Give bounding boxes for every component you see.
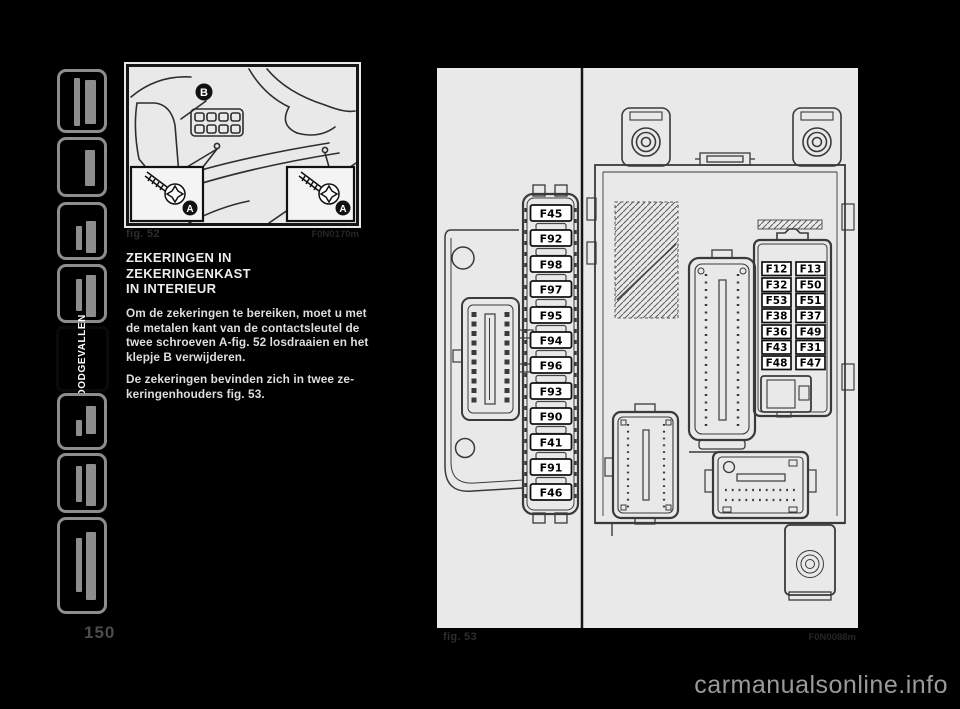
- fuse-id: F90: [540, 411, 563, 424]
- body-line: Om de zekeringen te bereiken, moet u met: [126, 306, 382, 321]
- fuse-cell: F98: [531, 256, 572, 282]
- left-fuse-labels: F45 F92 F98 F97 F95 F94: [531, 205, 572, 500]
- figure-53-code: F0N0088m: [808, 632, 856, 643]
- tab-text-blur: [76, 466, 82, 502]
- fuse-grid-labels: F12 F13 F32 F50 F53 F51 F38 F37 F36 F49: [762, 262, 825, 370]
- screw-inset-left: A: [131, 167, 203, 221]
- fuse-id: F38: [766, 311, 788, 323]
- fuse-grid-row: F43 F31: [762, 341, 825, 355]
- fuse-cell: F41: [531, 434, 572, 460]
- heading-line: ZEKERINGEN IN: [126, 250, 376, 266]
- fuse-id: F47: [800, 358, 822, 370]
- fuse-id: F93: [540, 386, 563, 399]
- fuse-id: F12: [766, 264, 788, 276]
- body-line: De zekeringen bevinden zich in twee ze-: [126, 372, 382, 387]
- sidebar-tab-7: [57, 453, 107, 513]
- tab-text-blur: [85, 80, 96, 124]
- sidebar-tab-noodgevallen: NOODGEVALLEN: [56, 326, 109, 392]
- fuse-cell: F46: [531, 484, 572, 500]
- edge-connector: [453, 298, 533, 420]
- sidebar-tab-2: [57, 137, 107, 197]
- figure-52-code: F0N0170m: [311, 229, 359, 240]
- fuse-cell: F91: [531, 459, 572, 485]
- fuse-cell: F94: [531, 332, 572, 358]
- figure-52-drawing: B A: [129, 67, 356, 223]
- fuse-grid-row: F53 F51: [762, 294, 825, 308]
- active-section-label: NOODGEVALLEN: [77, 314, 88, 405]
- fuse-cell: F93: [531, 383, 572, 409]
- tab-text-blur: [86, 275, 96, 317]
- watermark-text: carmanualsonline.info: [694, 671, 948, 700]
- fuse-id: F53: [766, 295, 788, 307]
- mounting-post-left: [622, 108, 670, 166]
- fuse-id: F50: [800, 280, 822, 292]
- figure-53-drawing: F45 F92 F98 F97 F95 F94: [437, 68, 858, 628]
- label-b-badge: B: [196, 84, 213, 101]
- fuse-grid-row: F32 F50: [762, 278, 825, 292]
- fuse-id: F92: [540, 233, 563, 246]
- lower-right-connector: [705, 452, 816, 518]
- figure-53-caption: fig. 53 F0N0088m: [443, 631, 856, 643]
- fuse-id: F48: [766, 358, 788, 370]
- figure-53-box: F45 F92 F98 F97 F95 F94: [437, 68, 858, 628]
- sidebar-tab-1: [57, 69, 107, 133]
- tab-text-blur: [76, 420, 82, 436]
- screw-inset-right: A: [287, 167, 354, 221]
- fuse-cell: F95: [531, 307, 572, 333]
- central-connector: [689, 250, 755, 452]
- figure-52-number: fig. 52: [126, 228, 160, 240]
- body-line: klepje B verwijderen.: [126, 350, 382, 365]
- label-a-right-text: A: [339, 204, 346, 215]
- fuse-id: F37: [800, 311, 822, 323]
- fuse-grid-row: F36 F49: [762, 325, 825, 339]
- fuse-id: F32: [766, 280, 788, 292]
- fuse-cell: F97: [531, 281, 572, 307]
- fuse-id: F13: [800, 264, 822, 276]
- sidebar-tab-3: [57, 202, 107, 260]
- fuse-id: F43: [766, 342, 788, 354]
- fuse-id: F96: [540, 360, 563, 373]
- fuse-cell: F92: [531, 230, 572, 256]
- manual-page: { "page": { "number": "150", "watermark"…: [0, 0, 960, 709]
- heading-line: ZEKERINGENKAST: [126, 266, 376, 282]
- paragraph-2: De zekeringen bevinden zich in twee ze- …: [126, 372, 382, 401]
- figure-52-box: B A: [124, 62, 361, 228]
- tab-text-blur: [86, 221, 96, 253]
- fuse-id: F98: [540, 259, 563, 272]
- fuse-id: F51: [800, 295, 822, 307]
- heading-line: IN INTERIEUR: [126, 281, 376, 297]
- leader-line-a-left2: [203, 149, 217, 167]
- fuse-cell: F90: [531, 408, 572, 434]
- fuse-id: F46: [540, 487, 563, 500]
- fuse-id: F45: [540, 208, 563, 221]
- section-heading: ZEKERINGEN IN ZEKERINGENKAST IN INTERIEU…: [126, 250, 376, 297]
- hatched-strip: [758, 220, 822, 229]
- fuse-grid-row: F12 F13: [762, 262, 825, 276]
- sidebar-tab-6: [57, 393, 107, 450]
- body-line: twee schroeven A-fig. 52 losdraaien en h…: [126, 335, 382, 350]
- tab-text-blur: [76, 279, 82, 311]
- fuse-id: F41: [540, 437, 563, 450]
- tab-text-blur: [76, 538, 82, 592]
- bracket-outline: [445, 230, 523, 491]
- fuse-id: F36: [766, 327, 788, 339]
- tab-text-blur: [86, 406, 96, 434]
- page-number: 150: [84, 623, 115, 643]
- figure-52-caption: fig. 52 F0N0170m: [126, 228, 359, 240]
- fuse-id: F97: [540, 284, 563, 297]
- paragraph-1: Om de zekeringen te bereiken, moet u met…: [126, 306, 382, 364]
- body-line: de metalen kant van de contactsleutel de: [126, 321, 382, 336]
- mounting-post-right: [793, 108, 841, 166]
- fuse-id: F94: [540, 335, 563, 348]
- fuse-id: F49: [800, 327, 822, 339]
- tab-text-blur: [76, 226, 82, 250]
- tab-text-blur: [74, 78, 80, 126]
- sidebar-tab-8: [57, 517, 107, 614]
- fuse-cell: F45: [531, 205, 572, 231]
- figure-52-frame: B A: [126, 64, 359, 226]
- fuse-id: F31: [800, 342, 822, 354]
- figure-53-number: fig. 53: [443, 631, 477, 643]
- fuse-id: F95: [540, 310, 563, 323]
- fuse-grid-row: F48 F47: [762, 356, 825, 370]
- lower-left-connector: [605, 404, 678, 524]
- leader-line-a-left: [187, 149, 217, 167]
- body-line: keringenhouders fig. 53.: [126, 387, 382, 402]
- fuse-cell: F96: [531, 357, 572, 383]
- tab-text-blur: [86, 532, 96, 600]
- top-clip: [695, 153, 755, 165]
- label-b-text: B: [200, 87, 208, 99]
- tab-text-blur: [85, 150, 95, 186]
- label-a-left-text: A: [186, 204, 193, 215]
- leader-line-b: [181, 101, 206, 119]
- tab-text-blur: [86, 464, 96, 506]
- hatched-area-large: [615, 202, 678, 318]
- fuse-id: F91: [540, 462, 563, 475]
- fuse-grid-row: F38 F37: [762, 309, 825, 323]
- bottom-mounting-foot: [785, 525, 835, 600]
